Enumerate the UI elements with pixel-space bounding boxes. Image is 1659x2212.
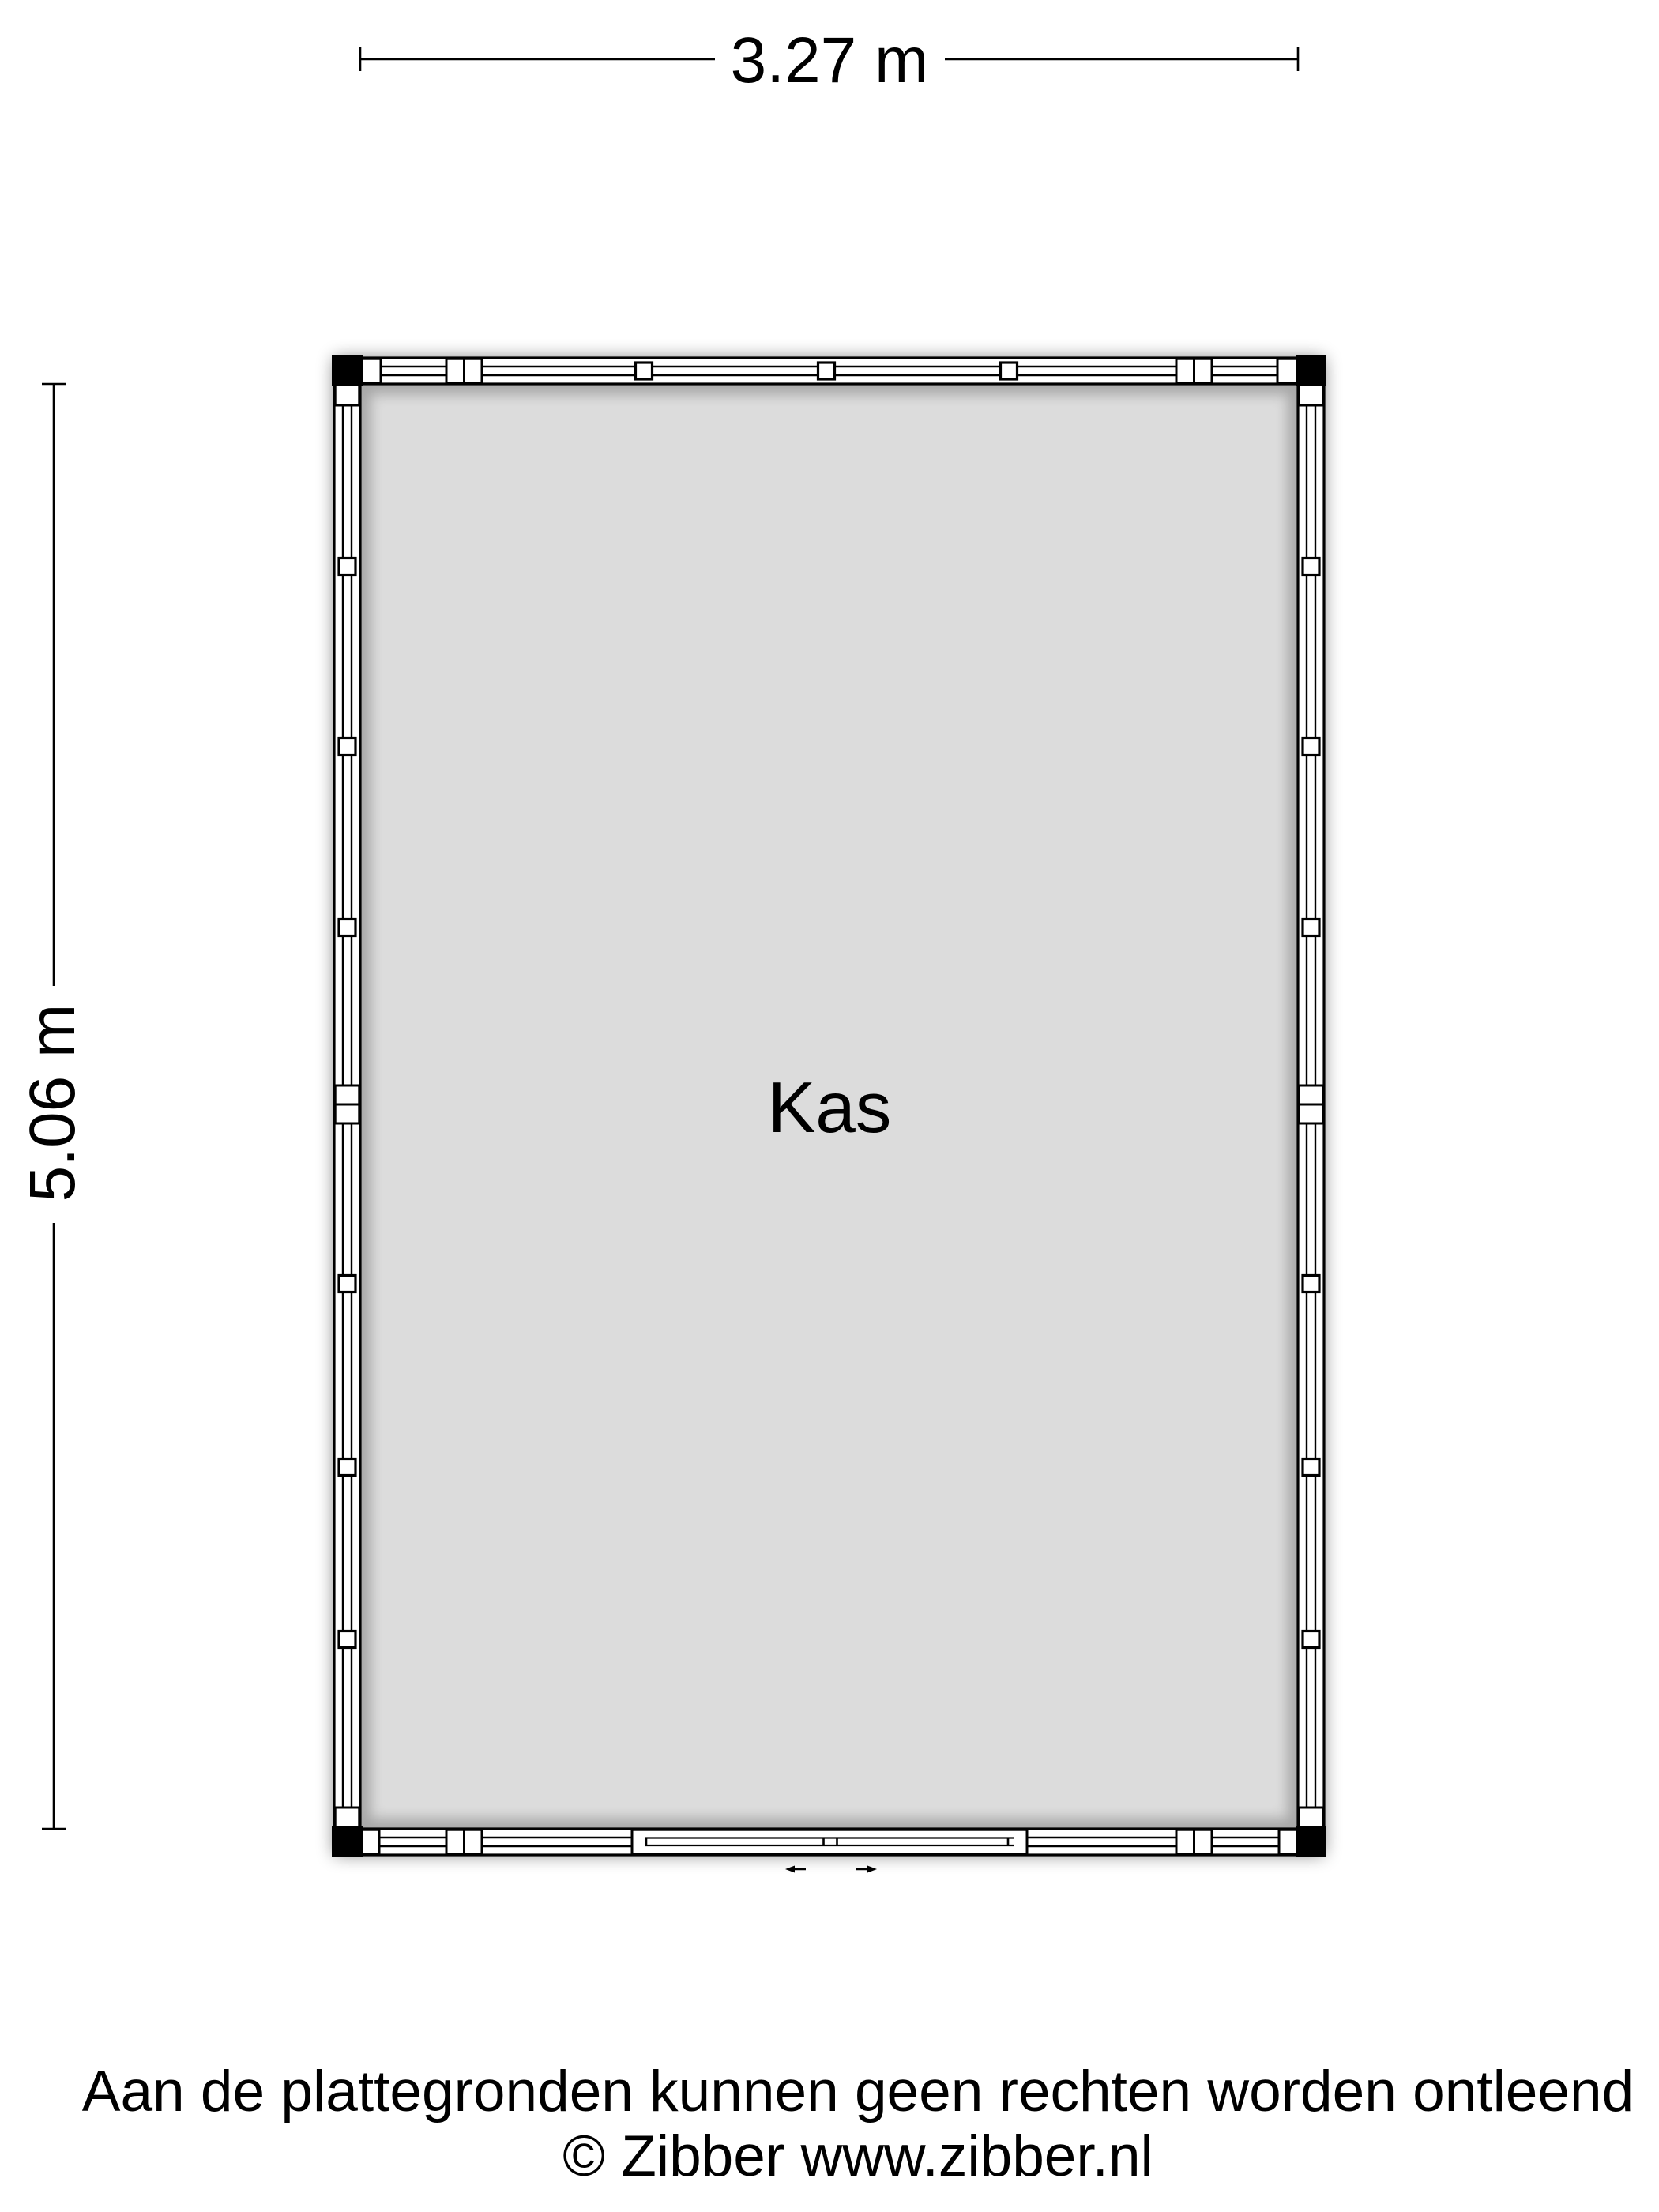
- svg-text:© Zibber www.zibber.nl: © Zibber www.zibber.nl: [562, 2124, 1153, 2188]
- svg-text:3.27 m: 3.27 m: [731, 24, 929, 96]
- svg-text:5.06 m: 5.06 m: [17, 1004, 88, 1202]
- svg-text:Aan de plattegronden kunnen ge: Aan de plattegronden kunnen geen rechten…: [82, 2060, 1634, 2124]
- svg-text:Kas: Kas: [768, 1068, 892, 1148]
